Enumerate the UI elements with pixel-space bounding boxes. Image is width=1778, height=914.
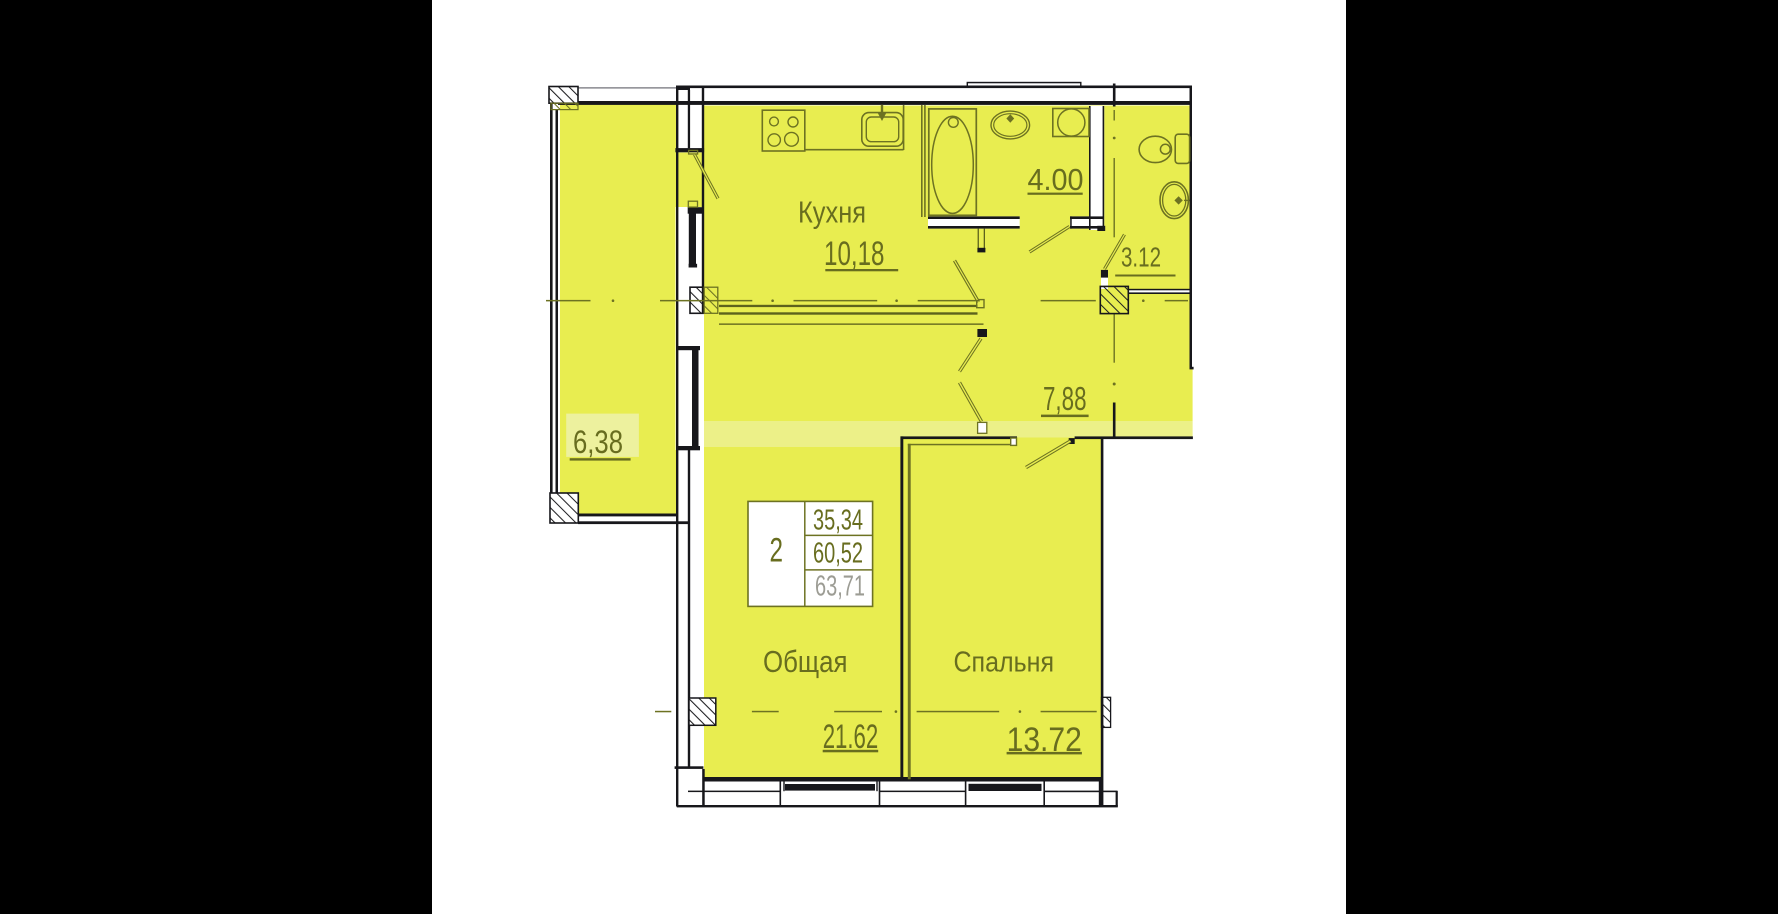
svg-text:2: 2 <box>770 532 784 570</box>
svg-text:Спальня: Спальня <box>954 647 1055 679</box>
svg-text:35,34: 35,34 <box>813 505 863 537</box>
svg-text:6,38: 6,38 <box>573 424 623 460</box>
svg-text:10,18: 10,18 <box>824 235 885 273</box>
svg-text:60,52: 60,52 <box>813 538 863 570</box>
svg-text:Общая: Общая <box>763 644 848 679</box>
svg-text:63,71: 63,71 <box>815 571 865 603</box>
svg-text:Кухня: Кухня <box>798 195 866 230</box>
svg-text:7,88: 7,88 <box>1043 380 1087 417</box>
svg-text:4.00: 4.00 <box>1028 162 1084 197</box>
svg-text:3.12: 3.12 <box>1121 242 1161 273</box>
